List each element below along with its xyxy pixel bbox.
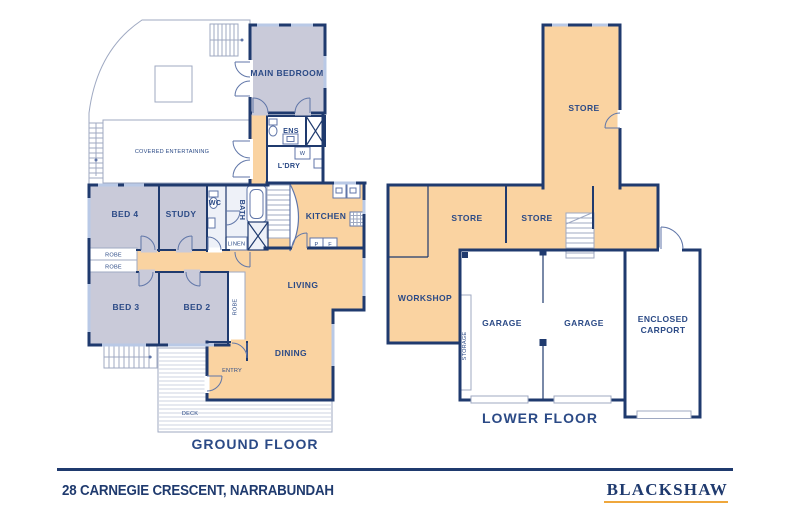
- ground-floor-title: GROUND FLOOR: [191, 436, 318, 452]
- label-store-left: STORE: [451, 213, 482, 223]
- ground-floor-plan: MAIN BEDROOM COVERED ENTERTAINING ENS W …: [89, 20, 365, 452]
- label-bed3: BED 3: [112, 302, 139, 312]
- label-garage-right: GARAGE: [564, 318, 604, 328]
- label-f: F: [328, 242, 332, 248]
- hallway: [137, 250, 250, 272]
- label-entry: ENTRY: [222, 368, 242, 374]
- wall-post: [540, 339, 547, 346]
- label-main-bedroom: MAIN BEDROOM: [250, 68, 323, 78]
- label-bath: BATH: [238, 200, 247, 221]
- garage-door-left: [471, 396, 528, 403]
- covered-entertaining: [89, 20, 250, 185]
- wall-post: [462, 252, 468, 258]
- label-deck: DECK: [182, 411, 198, 417]
- label-robe-c: ROBE: [233, 299, 239, 316]
- label-study: STUDY: [166, 209, 197, 219]
- label-covered-entertaining: COVERED ENTERTAINING: [135, 149, 209, 155]
- label-storage: STORAGE: [462, 332, 468, 361]
- floorplan-page: MAIN BEDROOM COVERED ENTERTAINING ENS W …: [0, 0, 790, 527]
- label-store-right: STORE: [521, 213, 552, 223]
- label-carport: CARPORT: [641, 325, 686, 335]
- label-living: LIVING: [288, 280, 319, 290]
- room-workshop: [388, 185, 460, 343]
- carport-door: [637, 411, 691, 419]
- label-robe-b: ROBE: [105, 265, 122, 271]
- floorplan-drawing: MAIN BEDROOM COVERED ENTERTAINING ENS W …: [0, 0, 790, 527]
- stairs-top: [210, 24, 244, 56]
- footer-divider: [57, 468, 733, 471]
- label-p: P: [315, 242, 319, 248]
- stairs-left: [89, 123, 103, 178]
- kitchen-sink: [350, 212, 364, 226]
- brand-underline: [604, 501, 728, 503]
- lower-floor-plan: STORE STORE STORE WORKSHOP GARAGE GARAGE…: [388, 25, 700, 426]
- label-ens: ENS: [283, 126, 299, 135]
- label-store-top: STORE: [568, 103, 599, 113]
- lower-floor-title: LOWER FLOOR: [482, 410, 598, 426]
- garage-door-right: [554, 396, 611, 403]
- label-w: W: [300, 151, 306, 157]
- label-kitchen: KITCHEN: [306, 211, 347, 221]
- property-address: 28 CARNEGIE CRESCENT, NARRABUNDAH: [62, 483, 334, 499]
- brand-logo: BLACKSHAW: [607, 480, 728, 500]
- label-bed2: BED 2: [183, 302, 210, 312]
- label-robe-a: ROBE: [105, 253, 122, 259]
- label-linen: LINEN: [228, 242, 245, 248]
- label-ldry: L'DRY: [278, 161, 301, 170]
- wall-post: [540, 249, 547, 256]
- label-enclosed: ENCLOSED: [638, 314, 688, 324]
- living-area: [245, 248, 364, 310]
- label-wc: WC: [209, 198, 222, 207]
- label-dining: DINING: [275, 348, 307, 358]
- label-garage-left: GARAGE: [482, 318, 522, 328]
- stairs-bottom: [104, 346, 157, 368]
- label-workshop: WORKSHOP: [398, 293, 452, 303]
- label-bed4: BED 4: [111, 209, 138, 219]
